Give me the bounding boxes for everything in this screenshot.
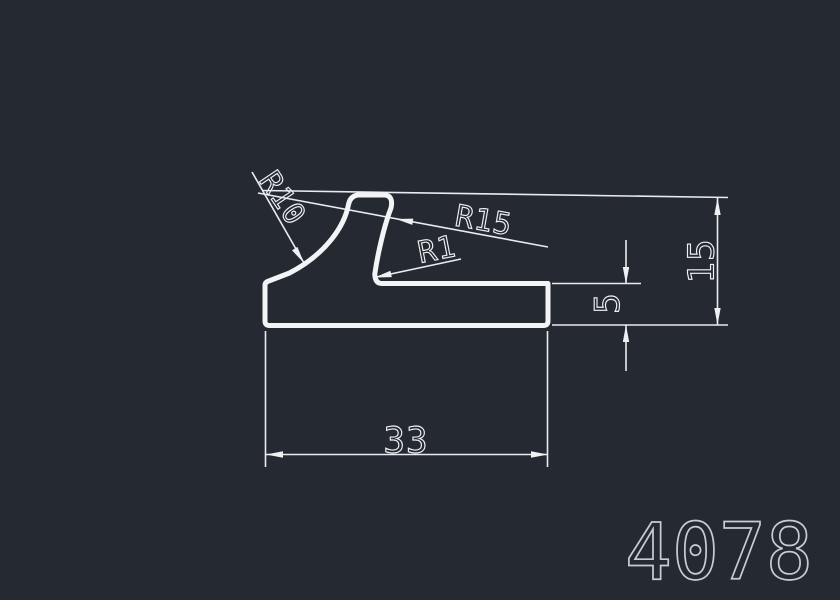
arrowhead-15-bottom [714, 308, 720, 325]
profile-technical-drawing: R10 R15 R1 15 5 33 4078 [0, 0, 840, 600]
dim-label-r10: R10 [252, 165, 313, 232]
arrowhead-33-left [266, 451, 283, 457]
arrowhead-33-right [531, 451, 548, 457]
arrowhead-r10 [292, 247, 304, 263]
cad-drawing-canvas: R10 R15 R1 15 5 33 4078 [0, 0, 840, 600]
dim-label-r15: R15 [453, 199, 515, 243]
arrowhead-5-top [623, 267, 629, 284]
dim-label-height-15: 15 [682, 238, 723, 283]
arrowhead-15-top [714, 198, 720, 215]
part-number: 4078 [625, 508, 813, 598]
arrowhead-5-bottom [623, 325, 629, 342]
dim-label-r1: R1 [415, 229, 459, 271]
dim-label-width-33: 33 [383, 421, 428, 462]
extension-line-top [262, 191, 728, 198]
dimension-labels: R10 R15 R1 15 5 33 [252, 165, 723, 462]
arrowhead-r15 [396, 219, 413, 225]
dim-label-thickness-5: 5 [588, 292, 628, 313]
